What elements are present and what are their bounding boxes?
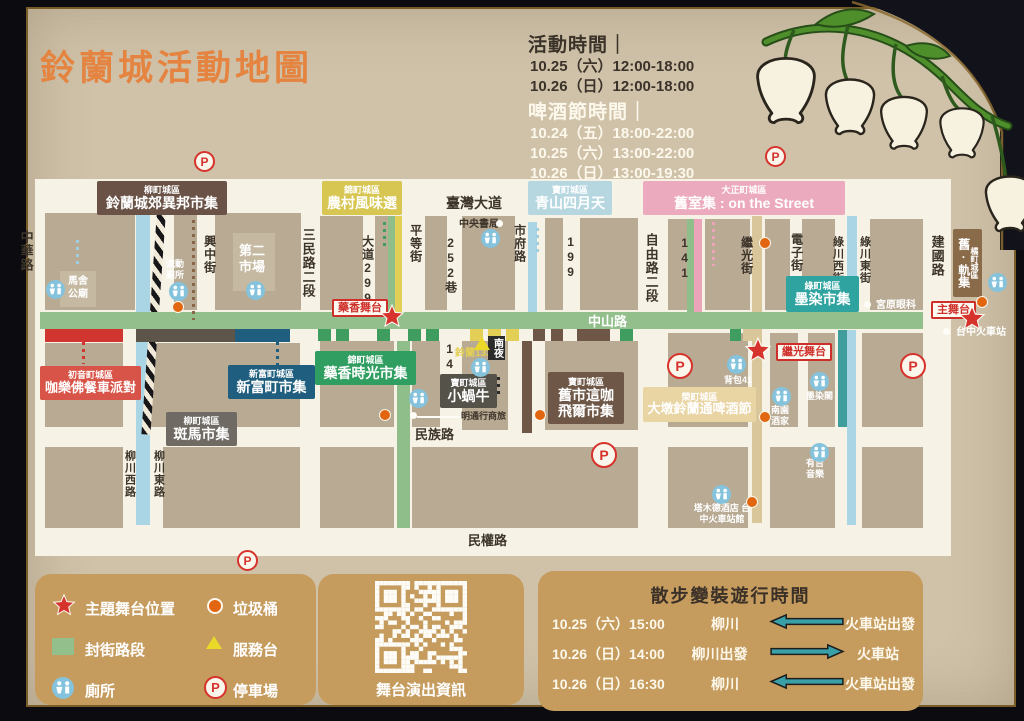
street-zhongshan: 中山路: [588, 314, 627, 330]
event-map-page: 鈴蘭城活動地圖 活動時間｜ 10.25（六）12:00-18:00 10.26（…: [0, 0, 1024, 721]
district-takara-snail[interactable]: 寶町城區 小蝸牛: [440, 374, 497, 408]
district-name: 藥香時光市集: [324, 365, 408, 381]
stage-star-icon: [379, 303, 405, 329]
district-name: 咖樂佛餐車派對: [45, 381, 136, 396]
event-hours-line: 10.25（六）12:00-18:00: [530, 55, 694, 76]
legend-parking-label: 停車場: [233, 680, 278, 701]
parking-icon: P: [591, 442, 617, 468]
district-name: 鈴蘭城郊異邦市集: [106, 195, 218, 211]
dotted-line: [536, 228, 539, 254]
dotted-line: [192, 220, 195, 320]
parade-datetime: 10.26（日）16:30: [552, 674, 665, 694]
parade-to: 火車站出發: [845, 614, 915, 634]
stall-square: [506, 329, 519, 341]
poi-mozanke: 墨染閣: [806, 391, 833, 402]
lvchuan-river: [847, 330, 856, 525]
parade-title: 散步變裝遊行時間: [538, 582, 923, 608]
red-market-band: [45, 329, 123, 342]
street-minquan: 民權路: [468, 534, 507, 548]
toilet-icon: [810, 372, 829, 391]
closed-street-band: [388, 216, 395, 313]
marker-dot: [943, 328, 950, 335]
toilet-icon: [988, 273, 1007, 292]
poi-nanyuan: 南園酒家: [771, 405, 793, 428]
street-dadao299: 大道299: [361, 235, 374, 306]
toilet-icon: [712, 485, 731, 504]
district-name: 舊市這咖: [558, 387, 614, 403]
arrow-left-icon: [768, 613, 846, 630]
trash-bin-icon: [172, 301, 184, 313]
legend-closed-street-icon: [52, 638, 74, 655]
trash-bin-icon: [759, 411, 771, 423]
yellow-street-band: [395, 216, 402, 313]
district-yanagimachi-zebra[interactable]: 柳町城區 斑馬市集: [166, 412, 237, 446]
marker-dot: [410, 412, 417, 419]
district-region: 柳町城區: [183, 416, 219, 426]
dotted-line: [712, 222, 715, 266]
district-name: 小蝸牛: [448, 388, 490, 404]
marker-dot: [496, 220, 503, 227]
street-sanmin: 三民路二段: [301, 228, 315, 298]
brown-market-band: [136, 329, 235, 342]
poi-market2: 第二市場: [239, 243, 269, 276]
district-nishiki-farm[interactable]: 錦町城區 農村風味選: [322, 181, 402, 215]
district-region: 新富町城區: [249, 369, 294, 379]
poi-masha: 馬舍公廟: [68, 276, 92, 301]
lvchuan-teal-band: [838, 330, 847, 427]
map-block: [375, 216, 388, 310]
legend-stage-label: 主題舞台位置: [85, 598, 175, 619]
pointer-line: [417, 416, 461, 418]
parade-from: 柳川: [685, 614, 765, 634]
district-region: 錦町城區: [347, 355, 383, 365]
map-block: [45, 447, 123, 528]
district-name: 大墩鈴蘭通啤酒節: [647, 402, 751, 417]
legend-trash-label: 垃圾桶: [233, 598, 278, 619]
stage-star-icon: [744, 336, 772, 364]
district-sakae[interactable]: 榮町城區 大墩鈴蘭通啤酒節: [643, 387, 756, 422]
street-shifu: 市府路: [513, 224, 526, 263]
parking-icon: P: [194, 151, 215, 172]
map-block: [320, 216, 363, 310]
event-hours-heading: 活動時間｜: [528, 30, 628, 57]
legend-parking-icon: P: [204, 676, 227, 699]
street-liuchuan-w: 柳川西路: [123, 450, 135, 498]
stall-square: [620, 329, 633, 341]
beer-hours-line: 10.26（日）13:00-19:30: [530, 162, 694, 183]
district-region: 橘町城區: [970, 247, 979, 279]
legend-toilet-label: 廁所: [85, 680, 115, 701]
poi-backpack41: 背包41: [724, 375, 752, 386]
toilet-icon: [409, 389, 428, 408]
street-lane252: 252巷: [444, 236, 457, 294]
poi-mobile-toilet: 流動廁所: [166, 259, 192, 282]
stall-square: [426, 329, 439, 341]
poi-miyahara: 宮原眼科: [876, 300, 916, 313]
street-zhonghua: 中華路: [19, 230, 33, 272]
stall-square: [377, 329, 390, 341]
legend-closed-street-label: 封街路段: [85, 639, 145, 660]
street-minzu: 民族路: [415, 428, 454, 442]
qr-code[interactable]: [375, 581, 467, 673]
district-region: 錦町城區: [344, 185, 380, 195]
legend-service-icon: [206, 636, 222, 649]
service-desk-icon: [474, 337, 490, 350]
dotted-line: [82, 342, 85, 364]
brown-street-band: [522, 341, 532, 433]
district-name: 飛爾市集: [558, 403, 614, 419]
parking-icon: P: [237, 550, 258, 571]
legend-toilet-icon: [52, 677, 74, 699]
stage-label-jiguang[interactable]: 繼光舞台: [776, 343, 832, 361]
toilet-icon: [246, 281, 265, 300]
street-ziyou: 自由路二段: [644, 233, 658, 303]
district-name: 墨染市集: [795, 291, 851, 307]
district-region: 寶町城區: [568, 377, 604, 387]
stall-square: [577, 329, 610, 341]
zhongshan-closed-street: [40, 312, 923, 329]
beer-hours-line: 10.24（五）18:00-22:00: [530, 122, 694, 143]
street-taiwan-blvd: 臺灣大道: [446, 196, 502, 211]
district-name: 新富町市集: [237, 379, 307, 395]
trash-bin-icon: [379, 409, 391, 421]
district-hatsune[interactable]: 初音町城區 咖樂佛餐車派對: [40, 366, 141, 400]
stage-star-icon: [958, 304, 986, 332]
trash-bin-icon: [534, 409, 546, 421]
map-block: [545, 218, 563, 310]
blue-market-band: [235, 329, 290, 342]
district-midori[interactable]: 綠町城區 墨染市集: [786, 276, 859, 312]
qr-label: 舞台演出資訊: [318, 679, 524, 700]
toilet-icon: [471, 358, 490, 377]
toilet-icon: [810, 443, 829, 462]
stall-square: [551, 329, 563, 341]
street-jiguang: 繼光街: [740, 236, 753, 275]
district-nishiki-herb[interactable]: 錦町城區 藥香時光市集: [315, 351, 416, 385]
district-name: 斑馬市集: [174, 426, 230, 442]
parking-icon: P: [667, 353, 693, 379]
stall-square: [408, 329, 421, 341]
lily-of-the-valley-illustration: [756, 0, 1024, 250]
map-block: [320, 447, 394, 528]
arrow-right-icon: [768, 643, 846, 660]
street-141: 141: [678, 236, 691, 281]
toilet-icon: [46, 280, 65, 299]
stall-square: [336, 329, 349, 341]
map-block: [580, 218, 638, 310]
legend-trash-icon: [207, 598, 223, 614]
district-region: 柳町城區: [144, 185, 180, 195]
beer-hours-line: 10.25（六）13:00-22:00: [530, 142, 694, 163]
parade-from: 柳川: [685, 674, 765, 694]
event-hours-line: 10.26（日）12:00-18:00: [530, 75, 694, 96]
parade-datetime: 10.25（六）15:00: [552, 614, 665, 634]
parade-from: 柳川出發: [672, 644, 767, 664]
parade-to: 火車站: [857, 644, 899, 664]
parade-to: 火車站出發: [845, 674, 915, 694]
district-region: 寶町城區: [450, 378, 486, 388]
poi-tamude: 塔木德酒店 台中火車站館: [692, 503, 752, 526]
toilet-icon: [169, 282, 188, 301]
page-title: 鈴蘭城活動地圖: [40, 40, 313, 91]
dotted-line: [497, 377, 500, 397]
toilet-icon: [772, 387, 791, 406]
marker-dot: [864, 301, 871, 308]
map-block: [862, 447, 923, 528]
arrow-left-icon: [768, 673, 846, 690]
district-region: 寶町城區: [552, 185, 588, 195]
district-takara-cafe[interactable]: 寶町城區 舊市這咖 飛爾市集: [548, 372, 624, 424]
parking-icon: P: [900, 353, 926, 379]
stall-square: [318, 329, 331, 341]
trash-bin-icon: [746, 496, 758, 508]
legend-stage-icon: [52, 593, 76, 617]
stall-square: [533, 329, 545, 341]
street-xingzhong: 興中街: [203, 235, 216, 274]
street-pingdeng: 平等街: [409, 224, 422, 263]
district-takara-aoyama[interactable]: 寶町城區 青山四月天: [528, 181, 612, 215]
dotted-line: [383, 222, 386, 250]
district-name: 青山四月天: [535, 195, 605, 211]
legend-service-label: 服務台: [233, 639, 278, 660]
district-shinfu[interactable]: 新富町城區 新富町市集: [228, 365, 315, 399]
pink-street-band: [694, 219, 702, 313]
parade-datetime: 10.26（日）14:00: [552, 644, 665, 664]
poi-hotel-mingtong: 明通行商旅: [461, 411, 506, 422]
toilet-icon: [481, 229, 500, 248]
map-block: [163, 447, 300, 528]
poi-nanye: 南夜: [488, 336, 505, 360]
stall-square: [730, 329, 741, 341]
map-block: [862, 333, 923, 427]
district-region: 綠町城區: [804, 281, 840, 291]
district-name: 農村風味選: [327, 195, 397, 211]
street-199: 199: [564, 235, 577, 280]
street-liuchuan-e: 柳川東路: [152, 450, 164, 498]
district-yanagimachi[interactable]: 柳町城區 鈴蘭城郊異邦市集: [97, 181, 227, 215]
beer-hours-heading: 啤酒節時間｜: [528, 97, 648, 124]
dotted-line: [76, 240, 79, 264]
